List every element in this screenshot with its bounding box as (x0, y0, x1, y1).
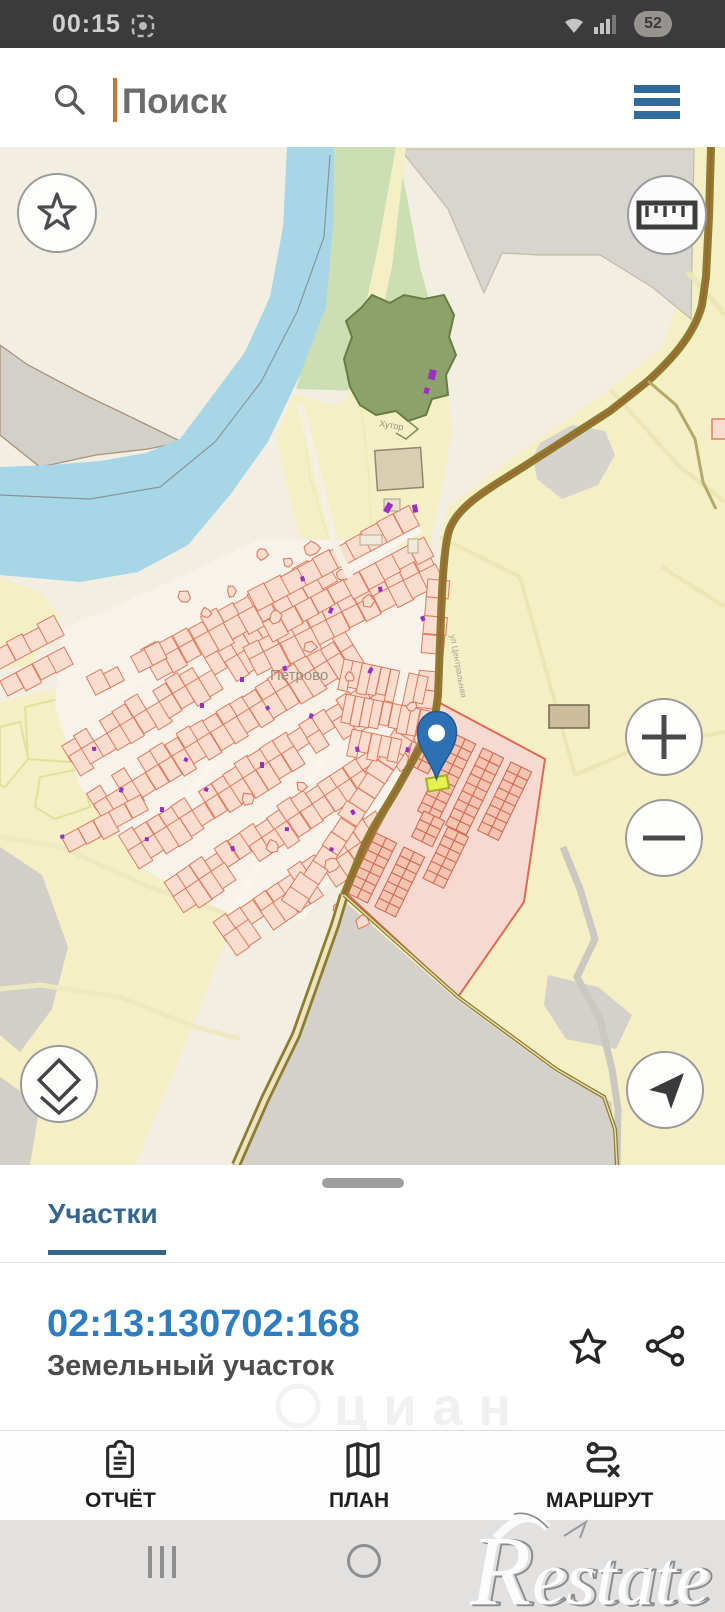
svg-text:Петрово: Петрово (270, 667, 328, 684)
svg-text:циан: циан (334, 1380, 527, 1432)
svg-text:estate: estate (532, 1537, 709, 1610)
